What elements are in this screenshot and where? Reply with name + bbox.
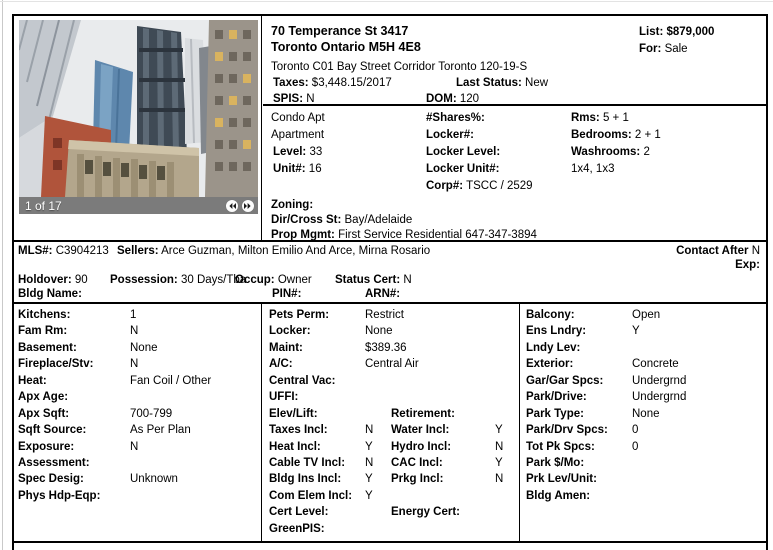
detail-row: Elev/Lift:Retirement: (269, 406, 519, 422)
building-photo-image (19, 20, 258, 197)
field-value: Fan Coil / Other (130, 373, 261, 389)
detail-row: Sqft Source:As Per Plan (18, 422, 261, 438)
detail-row: Com Elem Incl:Y (269, 488, 519, 504)
field-value (495, 356, 519, 372)
contact-after: Contact After N (676, 245, 760, 258)
detail-row: GreenPIS: (269, 521, 519, 537)
field-value: N (130, 439, 261, 455)
field-label: Exterior: (526, 356, 632, 372)
mls-section: MLS#: C3904213 Sellers: Arce Guzman, Mil… (14, 242, 766, 304)
field-value (495, 504, 519, 520)
field-value: Open (632, 307, 766, 323)
field-value: Central Air (365, 356, 391, 372)
field-label: CAC Incl: (391, 455, 495, 471)
field-value (365, 504, 391, 520)
detail-row: A/C:Central Air (269, 356, 519, 372)
sellers: Sellers: Arce Guzman, Milton Emilio And … (117, 245, 430, 258)
field-value (495, 307, 519, 323)
field-value: N (495, 471, 519, 487)
for-status: For: Sale (639, 43, 688, 56)
field-label: Energy Cert: (391, 504, 495, 520)
field-value (365, 389, 391, 405)
field-label: Lndy Lev: (526, 340, 632, 356)
detail-row: Balcony:Open (526, 307, 766, 323)
field-label: A/C: (269, 356, 365, 372)
field-label (391, 373, 495, 389)
arn-label: ARN#: (365, 288, 400, 301)
field-value: Unknown (130, 471, 261, 487)
field-value (495, 373, 519, 389)
field-value (130, 488, 261, 504)
field-value: None (130, 340, 261, 356)
washrooms-detail: 1x4, 1x3 (571, 163, 614, 176)
field-value (365, 406, 391, 422)
field-label: Park/Drive: (526, 389, 632, 405)
field-label: Prk Lev/Unit: (526, 471, 632, 487)
field-label: Park Type: (526, 406, 632, 422)
detail-row: Ens Lndry:Y (526, 323, 766, 339)
field-value (632, 340, 766, 356)
detail-row: Park $/Mo: (526, 455, 766, 471)
detail-row: Tot Pk Spcs:0 (526, 439, 766, 455)
field-value: Concrete (632, 356, 766, 372)
field-value: Y (495, 455, 519, 471)
detail-row: Locker:None (269, 323, 519, 339)
info-cell: 70 Temperance St 3417 Toronto Ontario M5… (263, 16, 766, 240)
field-label: Gar/Gar Spcs: (526, 373, 632, 389)
field-label: Fireplace/Stv: (18, 356, 130, 372)
detail-row: Park Type:None (526, 406, 766, 422)
field-value (495, 521, 519, 537)
locker-unit-label: Locker Unit#: (426, 163, 500, 176)
field-label: Prkg Incl: (391, 471, 495, 487)
detail-row: Prk Lev/Unit: (526, 471, 766, 487)
detail-row: Assessment: (18, 455, 261, 471)
field-label: Fam Rm: (18, 323, 130, 339)
photo-counter: 1 of 17 (19, 199, 62, 213)
detail-row: Heat:Fan Coil / Other (18, 373, 261, 389)
detail-row: Exterior:Concrete (526, 356, 766, 372)
field-label: Central Vac: (269, 373, 365, 389)
washrooms: Washrooms: 2 (571, 146, 650, 159)
field-label (391, 307, 495, 323)
field-value: None (365, 323, 391, 339)
detail-row: Lndy Lev: (526, 340, 766, 356)
detail-row: Park/Drv Spcs:0 (526, 422, 766, 438)
listing-photo[interactable]: 1 of 17 (19, 20, 258, 214)
next-section-stub (14, 543, 766, 550)
field-value: Undergrnd (632, 389, 766, 405)
corp-number: Corp#: TSCC / 2529 (426, 180, 533, 193)
field-label: Maint: (269, 340, 365, 356)
field-label: Hydro Incl: (391, 439, 495, 455)
holdover: Holdover: 90 (18, 274, 88, 287)
field-label: Retirement: (391, 406, 495, 422)
field-label: Sqft Source: (18, 422, 130, 438)
detail-row: Apx Sqft:700-799 (18, 406, 261, 422)
rooms: Rms: 5 + 1 (571, 112, 629, 125)
shares-label: #Shares%: (426, 112, 485, 125)
field-value: $389.36 (365, 340, 391, 356)
listing-table: 1 of 17 (12, 14, 768, 550)
field-value (632, 488, 766, 504)
details-right-column: Balcony:OpenEns Lndry:YLndy Lev:Exterior… (521, 304, 766, 541)
field-value (495, 389, 519, 405)
address-line2: Toronto Ontario M5H 4E8 (271, 41, 421, 54)
detail-row: Spec Desig:Unknown (18, 471, 261, 487)
field-label: Ens Lndry: (526, 323, 632, 339)
detail-row: Cable TV Incl:NCAC Incl:Y (269, 455, 519, 471)
rewind-icon (225, 199, 239, 213)
locker-level-label: Locker Level: (426, 146, 500, 159)
level: Level: 33 (273, 146, 322, 159)
field-value: Y (365, 439, 391, 455)
property-style: Apartment (271, 129, 324, 142)
field-label: Exposure: (18, 439, 130, 455)
field-value (632, 455, 766, 471)
field-value: Y (365, 488, 391, 504)
field-label: Locker: (269, 323, 365, 339)
listing-page: 1 of 17 (0, 0, 773, 550)
header-divider (263, 104, 766, 106)
prop-mgmt: Prop Mgmt: First Service Residential 647… (271, 229, 537, 242)
detail-row: Bldg Amen: (526, 488, 766, 504)
photo-caption-bar: 1 of 17 (19, 197, 258, 214)
photo-cell: 1 of 17 (14, 16, 262, 240)
top-section: 1 of 17 (14, 16, 766, 242)
zoning-label: Zoning: (271, 199, 313, 212)
field-label: Heat: (18, 373, 130, 389)
field-value: 1 (130, 307, 261, 323)
field-value (495, 340, 519, 356)
detail-row: Maint:$389.36 (269, 340, 519, 356)
mls-number: MLS#: C3904213 (18, 245, 109, 258)
detail-row: Exposure:N (18, 439, 261, 455)
field-label: Assessment: (18, 455, 130, 471)
field-label: Heat Incl: (269, 439, 365, 455)
field-value (495, 488, 519, 504)
field-label (391, 488, 495, 504)
field-value: Y (365, 471, 391, 487)
field-value (365, 373, 391, 389)
field-label: Park $/Mo: (526, 455, 632, 471)
field-value: None (632, 406, 766, 422)
field-value: 0 (632, 422, 766, 438)
field-value (130, 389, 261, 405)
detail-row: Kitchens:1 (18, 307, 261, 323)
district-line: Toronto C01 Bay Street Corridor Toronto … (271, 61, 527, 74)
detail-row: Cert Level:Energy Cert: (269, 504, 519, 520)
dir-cross-st: Dir/Cross St: Bay/Adelaide (271, 214, 412, 227)
property-type: Condo Apt (271, 112, 325, 125)
field-label: Bldg Ins Incl: (269, 471, 365, 487)
field-label: Tot Pk Spcs: (526, 439, 632, 455)
detail-row: Apx Age: (18, 389, 261, 405)
field-label: Bldg Amen: (526, 488, 632, 504)
field-label (391, 356, 495, 372)
detail-row: Basement:None (18, 340, 261, 356)
pin-label: PIN#: (272, 288, 301, 301)
field-label: Basement: (18, 340, 130, 356)
photo-next-button[interactable] (241, 199, 255, 213)
fast-forward-icon (241, 199, 255, 213)
bldg-name-label: Bldg Name: (18, 288, 82, 301)
field-label (391, 389, 495, 405)
field-value: N (365, 422, 391, 438)
field-value: As Per Plan (130, 422, 261, 438)
field-label: Cert Level: (269, 504, 365, 520)
field-label: Elev/Lift: (269, 406, 365, 422)
address-line1: 70 Temperance St 3417 (271, 25, 408, 38)
last-status: Last Status: New (456, 77, 548, 90)
field-value: Y (495, 422, 519, 438)
detail-row: Park/Drive:Undergrnd (526, 389, 766, 405)
field-label: Taxes Incl: (269, 422, 365, 438)
field-label: Balcony: (526, 307, 632, 323)
field-value: Restrict (365, 307, 391, 323)
details-left-column: Kitchens:1Fam Rm:NBasement:NoneFireplace… (14, 304, 262, 541)
field-label: Apx Sqft: (18, 406, 130, 422)
field-label: Park/Drv Spcs: (526, 422, 632, 438)
field-value: N (365, 455, 391, 471)
detail-row: Bldg Ins Incl:YPrkg Incl:N (269, 471, 519, 487)
field-label: GreenPIS: (269, 521, 365, 537)
taxes: Taxes: $3,448.15/2017 (273, 77, 392, 90)
field-value: 700-799 (130, 406, 261, 422)
occupancy: Occup: Owner (235, 274, 312, 287)
field-label: Cable TV Incl: (269, 455, 365, 471)
field-label: Apx Age: (18, 389, 130, 405)
field-value: N (130, 356, 261, 372)
detail-row: Phys Hdp-Eqp: (18, 488, 261, 504)
field-label: Phys Hdp-Eqp: (18, 488, 130, 504)
field-value: N (495, 439, 519, 455)
details-middle-column: Pets Perm:RestrictLocker:NoneMaint:$389.… (263, 304, 520, 541)
field-label: Water Incl: (391, 422, 495, 438)
field-label: Com Elem Incl: (269, 488, 365, 504)
field-value: Y (632, 323, 766, 339)
detail-row: Taxes Incl:NWater Incl:Y (269, 422, 519, 438)
field-value: Undergrnd (632, 373, 766, 389)
field-label: Kitchens: (18, 307, 130, 323)
field-value: N (130, 323, 261, 339)
field-value (130, 455, 261, 471)
page-edge-line (2, 0, 3, 550)
detail-row: Fireplace/Stv:N (18, 356, 261, 372)
field-value (365, 521, 391, 537)
unit-number: Unit#: 16 (273, 163, 322, 176)
field-value (632, 471, 766, 487)
status-cert: Status Cert: N (335, 274, 412, 287)
photo-prev-button[interactable] (225, 199, 239, 213)
list-price: List: $879,000 (639, 26, 714, 39)
field-label (391, 340, 495, 356)
field-value (495, 323, 519, 339)
field-label: Pets Perm: (269, 307, 365, 323)
page-edge-line-top (0, 1, 773, 2)
detail-row: Gar/Gar Spcs:Undergrnd (526, 373, 766, 389)
field-label (391, 323, 495, 339)
field-value: 0 (632, 439, 766, 455)
field-value (495, 406, 519, 422)
detail-row: Central Vac: (269, 373, 519, 389)
field-label: Spec Desig: (18, 471, 130, 487)
locker-num-label: Locker#: (426, 129, 474, 142)
exp-label: Exp: (735, 259, 760, 272)
details-section: Kitchens:1Fam Rm:NBasement:NoneFireplace… (14, 304, 766, 543)
field-label (391, 521, 495, 537)
possession: Possession: 30 Days/Tba (110, 274, 246, 287)
detail-row: Pets Perm:Restrict (269, 307, 519, 323)
detail-row: UFFI: (269, 389, 519, 405)
field-label: UFFI: (269, 389, 365, 405)
detail-row: Fam Rm:N (18, 323, 261, 339)
bedrooms: Bedrooms: 2 + 1 (571, 129, 661, 142)
detail-row: Heat Incl:YHydro Incl:N (269, 439, 519, 455)
